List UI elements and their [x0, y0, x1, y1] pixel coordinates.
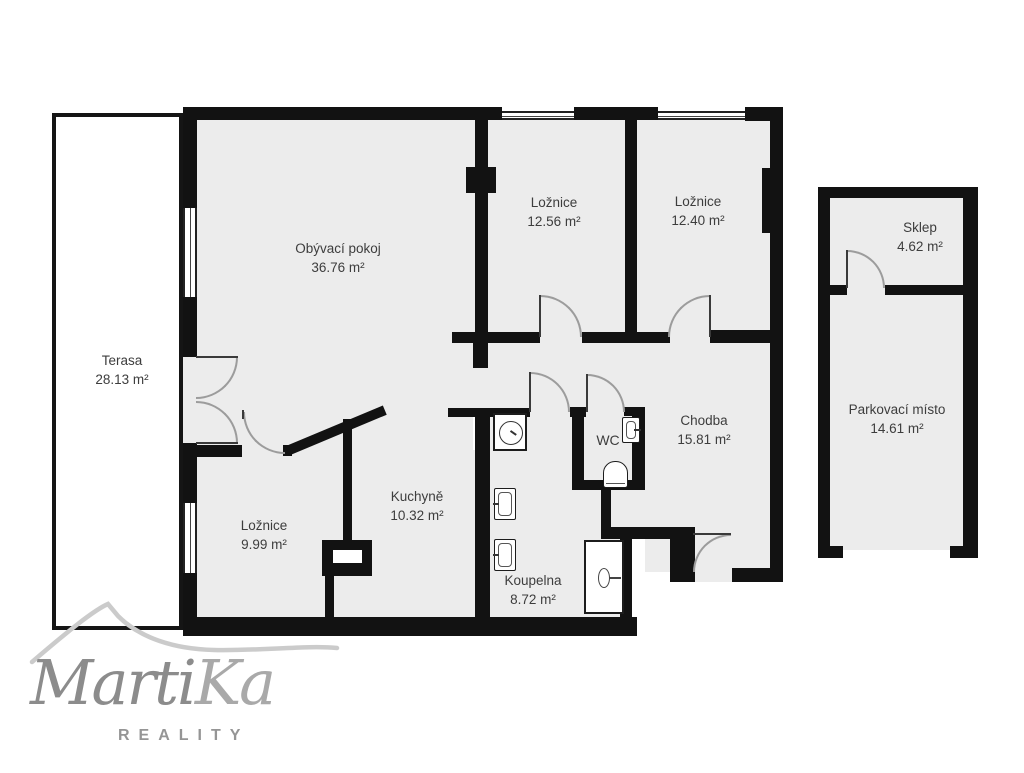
room-label-loznice-3: Ložnice 9.99 m² [241, 516, 288, 554]
door-leaf [693, 533, 731, 535]
sink-icon [494, 488, 516, 520]
room-area: 36.76 m² [295, 258, 381, 277]
room-area: 28.13 m² [95, 370, 148, 389]
washing-machine-icon [493, 413, 527, 451]
room-label-loznice-1: Ložnice 12.56 m² [527, 193, 580, 231]
bathtub-pipe [609, 577, 621, 579]
washing-machine-drum [499, 421, 523, 445]
faucet-icon [493, 554, 499, 556]
door-leaf [586, 374, 588, 412]
door-leaf [242, 410, 244, 419]
floor-plan: Obývací pokoj 36.76 m² Ložnice 12.56 m² … [0, 0, 1024, 773]
wall [183, 115, 197, 208]
room-area: 14.61 m² [849, 419, 946, 438]
faucet-icon [493, 503, 499, 505]
wall-foot [830, 546, 843, 558]
floor-area [183, 357, 197, 443]
wall [183, 445, 242, 457]
wall [475, 120, 488, 332]
sink-basin [498, 492, 512, 516]
wall [582, 332, 670, 343]
logo-subtitle: REALITY [118, 727, 249, 745]
room-name: Chodba [677, 411, 730, 430]
wall [183, 297, 197, 357]
room-area: 12.56 m² [527, 212, 580, 231]
room-name: Ložnice [527, 193, 580, 212]
window-symbol [183, 208, 197, 297]
room-label-sklep: Sklep 4.62 m² [897, 218, 943, 256]
room-label-chodba: Chodba 15.81 m² [677, 411, 730, 449]
wall [818, 187, 978, 198]
room-label-terasa: Terasa 28.13 m² [95, 351, 148, 389]
wall [818, 187, 830, 558]
sink-basin [498, 543, 512, 567]
room-name: Terasa [95, 351, 148, 370]
wall [710, 330, 783, 343]
room-name: Ložnice [241, 516, 288, 535]
wall [885, 285, 963, 295]
flue-opening [333, 550, 362, 563]
room-label-kuchyne: Kuchyně 10.32 m² [390, 487, 443, 525]
sink-icon [622, 417, 640, 443]
door-leaf [196, 442, 238, 444]
bathtub-icon [584, 540, 624, 614]
room-area: 9.99 m² [241, 535, 288, 554]
wall [475, 408, 490, 620]
door-leaf [709, 295, 711, 337]
wall [601, 490, 611, 532]
sink-icon [494, 539, 516, 571]
wall [830, 285, 847, 295]
room-name: Parkovací místo [849, 400, 946, 419]
room-area: 10.32 m² [390, 506, 443, 525]
room-name: Koupelna [504, 571, 561, 590]
wall [452, 332, 540, 343]
room-label-koupelna: Koupelna 8.72 m² [504, 571, 561, 609]
room-label-loznice-2: Ložnice 12.40 m² [671, 192, 724, 230]
room-name: Sklep [897, 218, 943, 237]
door-leaf [539, 295, 541, 337]
room-area: 8.72 m² [504, 590, 561, 609]
faucet-icon [634, 429, 641, 431]
wall [625, 118, 637, 332]
wall [732, 568, 783, 582]
door-leaf [846, 250, 848, 288]
room-area: 12.40 m² [671, 211, 724, 230]
room-label-obyvaci-pokoj: Obývací pokoj 36.76 m² [295, 239, 381, 277]
room-label-wc: WC [596, 431, 619, 451]
wall [601, 527, 695, 539]
room-area: 4.62 m² [897, 237, 943, 256]
logo-brand-part1: Marti [30, 646, 195, 719]
logo-brand: MartiKa [30, 646, 274, 719]
room-area: 15.81 m² [677, 430, 730, 449]
wall [762, 168, 771, 233]
wall [343, 419, 352, 540]
window-symbol [183, 503, 197, 573]
wall [572, 407, 584, 490]
logo-brand-part2: Ka [195, 646, 274, 719]
wall [183, 107, 502, 120]
room-name: Ložnice [671, 192, 724, 211]
wall [770, 115, 783, 582]
window-symbol [658, 111, 745, 120]
wall-foot [950, 546, 963, 558]
door-leaf [196, 356, 238, 358]
wall [670, 538, 695, 582]
wall [963, 187, 978, 558]
room-name: Kuchyně [390, 487, 443, 506]
toilet-icon [603, 461, 628, 488]
room-name: WC [596, 431, 619, 451]
wall [574, 107, 658, 120]
door-leaf [529, 372, 531, 412]
wall-pillar [466, 167, 496, 193]
room-name: Obývací pokoj [295, 239, 381, 258]
window-symbol [502, 111, 574, 120]
room-label-parkovaci-misto: Parkovací místo 14.61 m² [849, 400, 946, 438]
